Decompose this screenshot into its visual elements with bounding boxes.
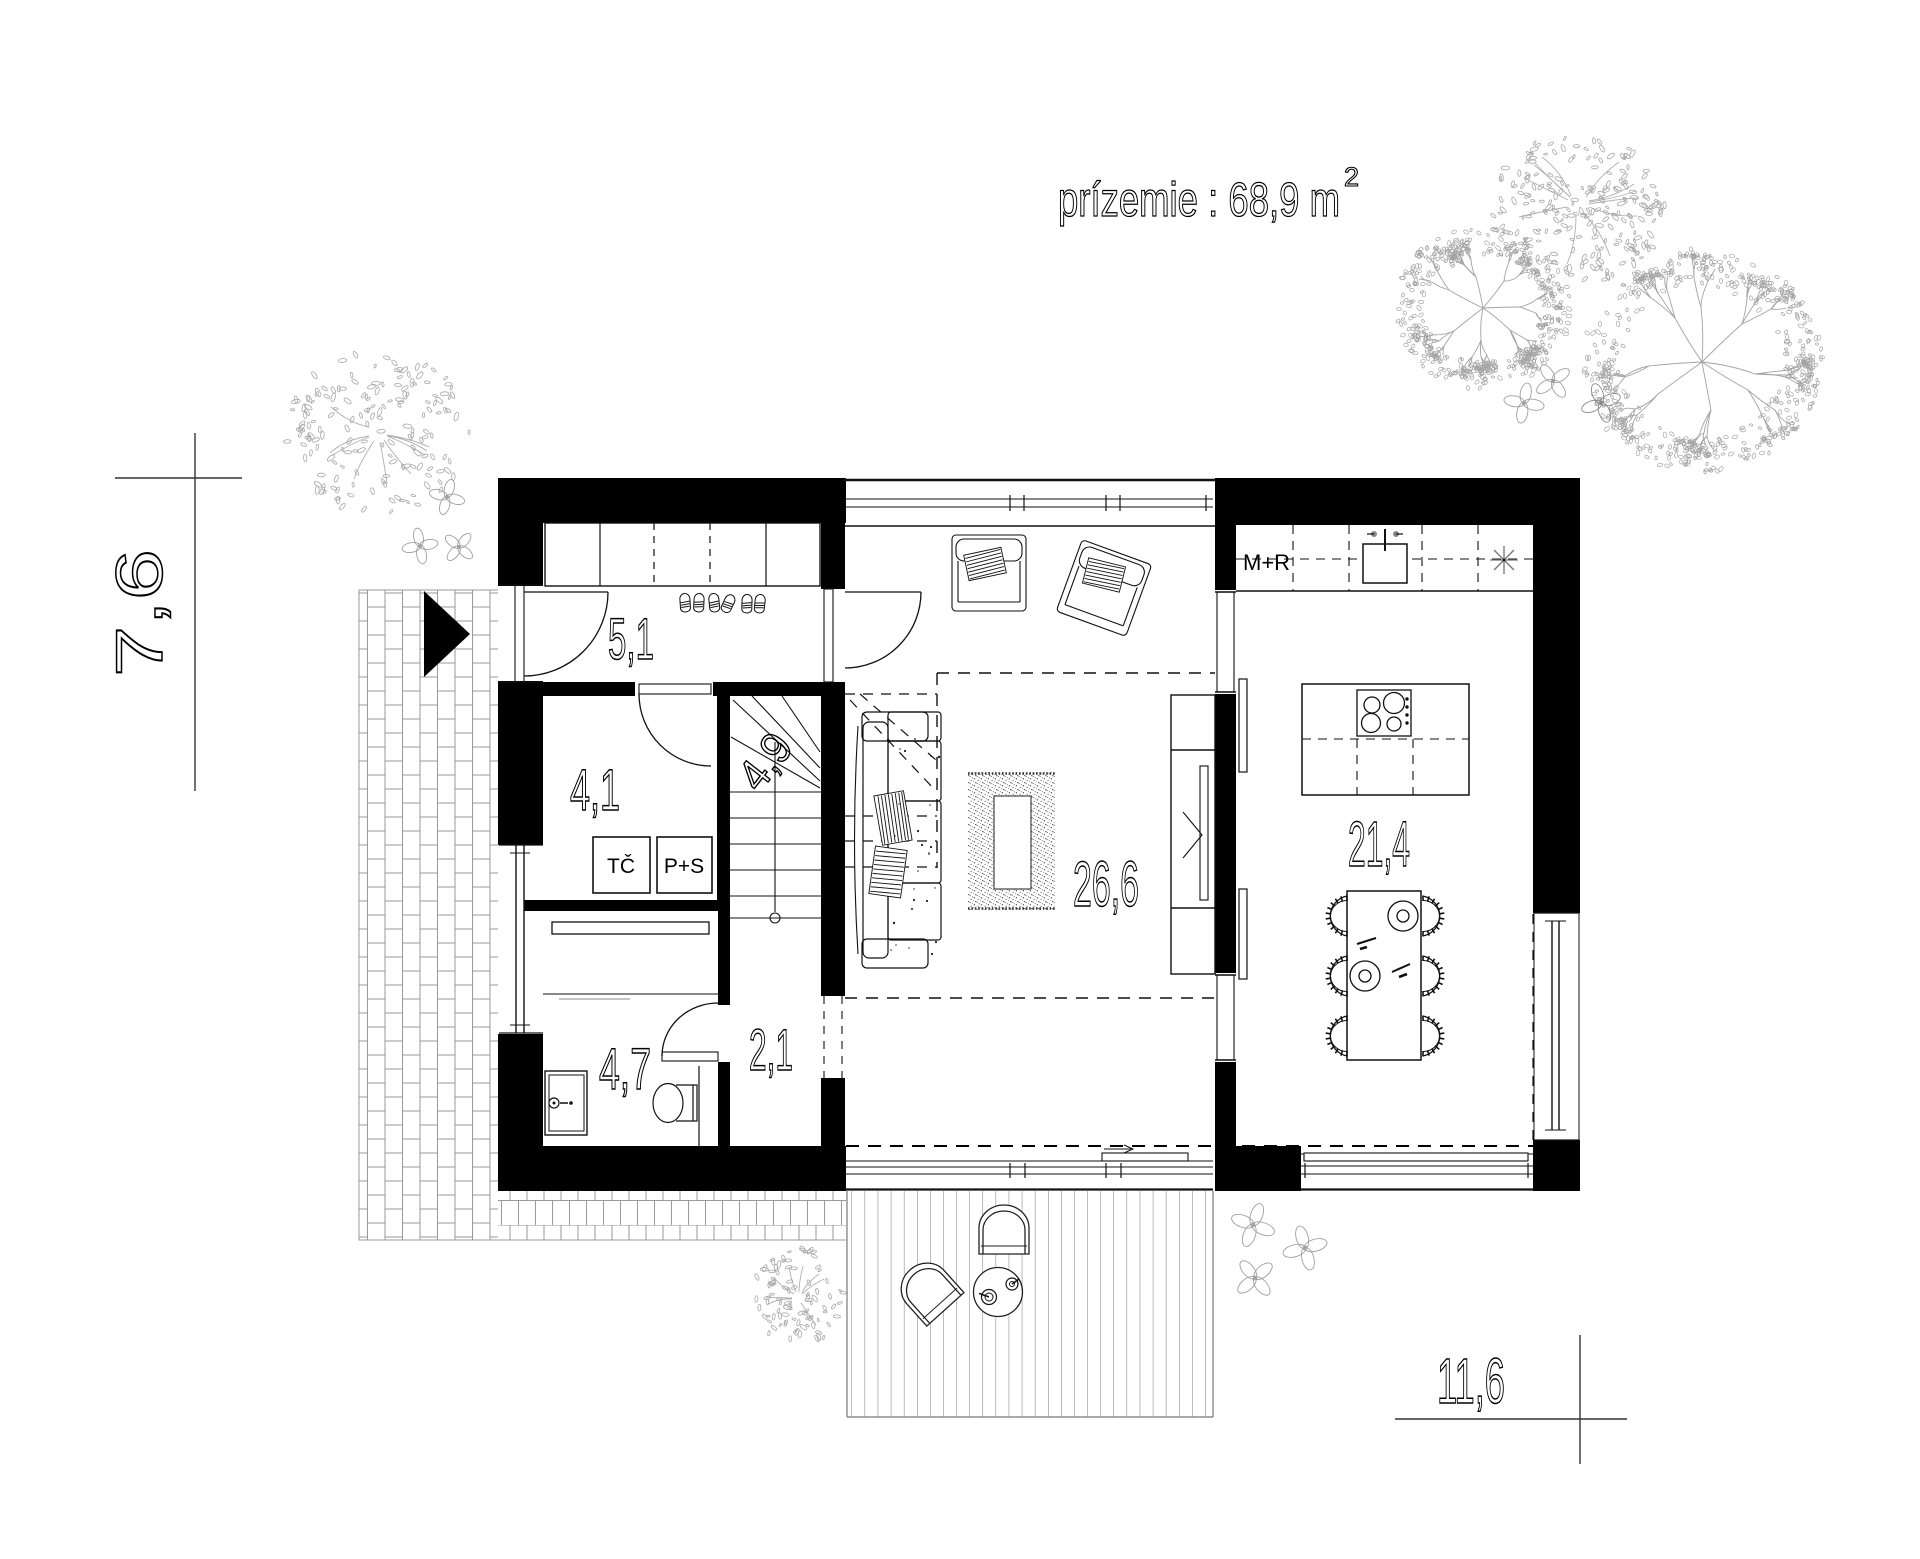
svg-text:21,4: 21,4: [1348, 808, 1410, 880]
svg-text:4,7: 4,7: [599, 1037, 651, 1102]
svg-text:11,6: 11,6: [1437, 1345, 1505, 1417]
svg-text:prízemie : 68,9 m: prízemie : 68,9 m: [1058, 174, 1340, 227]
svg-text:TČ: TČ: [607, 855, 635, 878]
svg-text:M+R: M+R: [1243, 550, 1290, 575]
svg-text:P+S: P+S: [664, 855, 704, 878]
svg-text:4,1: 4,1: [570, 758, 620, 823]
svg-text:7,6: 7,6: [102, 549, 176, 677]
svg-text:5,1: 5,1: [608, 607, 654, 672]
svg-text:26,6: 26,6: [1073, 848, 1139, 920]
svg-text:2: 2: [1344, 162, 1359, 192]
svg-text:2,1: 2,1: [749, 1018, 793, 1083]
